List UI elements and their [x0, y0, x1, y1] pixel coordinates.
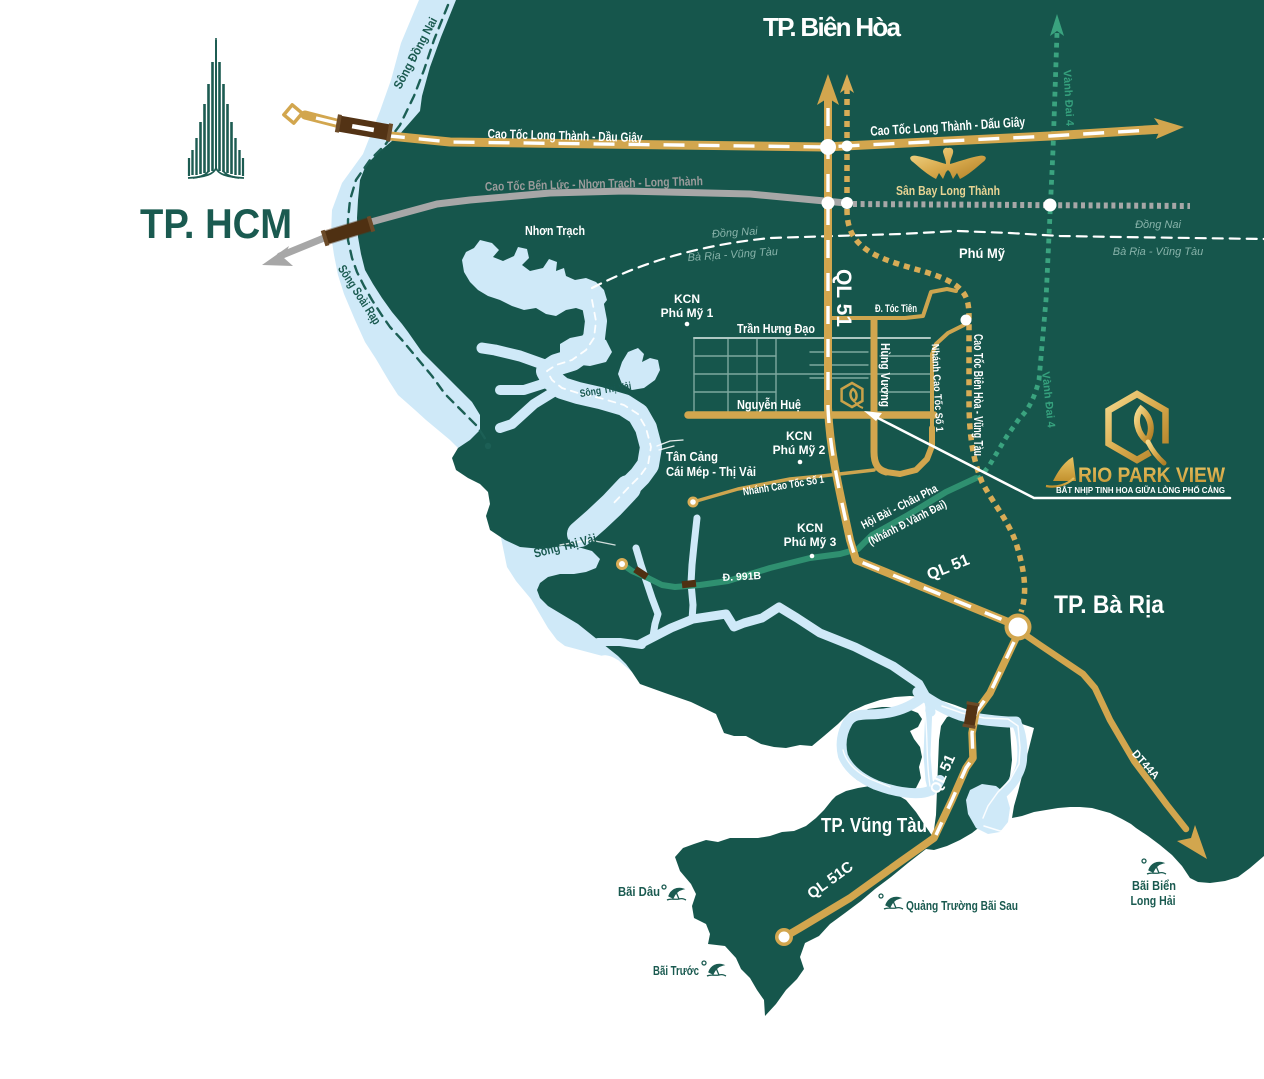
svg-text:Trần Hưng Đạo: Trần Hưng Đạo: [737, 322, 815, 336]
svg-text:Phú Mỹ: Phú Mỹ: [959, 245, 1005, 261]
svg-text:TP. Vũng Tàu: TP. Vũng Tàu: [821, 815, 927, 837]
svg-text:Đ. 991B: Đ. 991B: [722, 570, 762, 584]
svg-text:Nguyễn Huệ: Nguyễn Huệ: [737, 397, 801, 412]
svg-text:KCN: KCN: [797, 521, 823, 535]
svg-text:KCN: KCN: [674, 292, 700, 306]
svg-text:BẮT NHỊP TINH HOA GIỮA LÒNG PH: BẮT NHỊP TINH HOA GIỮA LÒNG PHỐ CẢNG: [1056, 484, 1225, 495]
svg-text:Phú Mỹ 3: Phú Mỹ 3: [784, 535, 837, 549]
svg-text:Phú Mỹ 1: Phú Mỹ 1: [661, 306, 714, 320]
svg-text:Bãi Trước: Bãi Trước: [653, 964, 699, 978]
svg-text:QL 51: QL 51: [832, 269, 855, 327]
svg-text:Bà Rịa - Vũng Tàu: Bà Rịa - Vũng Tàu: [1113, 246, 1204, 258]
svg-text:Tân Cảng: Tân Cảng: [666, 449, 718, 464]
svg-text:TP. Biên Hòa: TP. Biên Hòa: [763, 12, 902, 42]
svg-text:Long Hải: Long Hải: [1131, 894, 1176, 908]
svg-text:Bãi Dâu: Bãi Dâu: [618, 885, 660, 899]
svg-text:Quảng Trường Bãi Sau: Quảng Trường Bãi Sau: [906, 899, 1018, 913]
svg-text:TP. Bà Rịa: TP. Bà Rịa: [1054, 591, 1165, 619]
svg-text:Bãi Biển: Bãi Biển: [1132, 879, 1176, 893]
svg-text:Sân Bay Long Thành: Sân Bay Long Thành: [896, 183, 1000, 198]
svg-text:Đ. Tóc Tiên: Đ. Tóc Tiên: [875, 303, 917, 315]
svg-text:TP. HCM: TP. HCM: [140, 200, 292, 247]
svg-text:RIO PARK VIEW: RIO PARK VIEW: [1078, 464, 1225, 487]
svg-text:Cao Tốc Biên Hòa - Vũng Tàu: Cao Tốc Biên Hòa - Vũng Tàu: [971, 334, 985, 456]
svg-text:Nhơn Trạch: Nhơn Trạch: [525, 223, 585, 238]
svg-text:Cái Mép - Thị Vải: Cái Mép - Thị Vải: [666, 464, 756, 479]
svg-text:KCN: KCN: [786, 429, 812, 443]
svg-text:Phú Mỹ 2: Phú Mỹ 2: [773, 443, 826, 457]
svg-text:Đồng Nai: Đồng Nai: [1135, 219, 1181, 231]
svg-text:Hùng Vương: Hùng Vương: [878, 343, 892, 407]
